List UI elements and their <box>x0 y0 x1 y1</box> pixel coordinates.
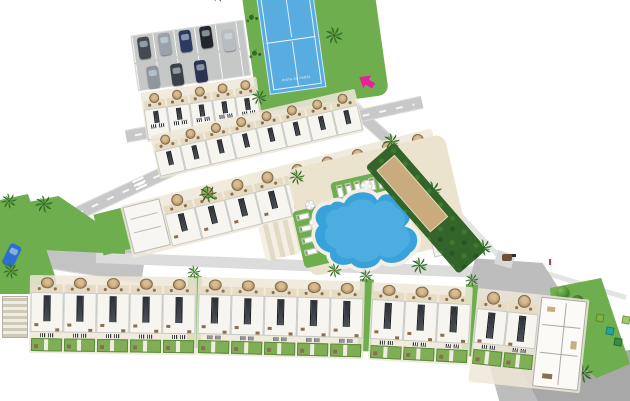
furniture <box>547 306 555 312</box>
roof-furniture <box>477 339 481 342</box>
roof <box>332 105 363 136</box>
roof-furniture <box>289 332 293 335</box>
stair-access <box>172 335 185 339</box>
roof <box>63 292 97 332</box>
stair-access <box>40 333 53 337</box>
roof-furniture <box>88 329 92 332</box>
solar-panel <box>486 312 496 339</box>
palm-tree <box>200 186 216 202</box>
solar-panel <box>216 139 224 154</box>
roof <box>473 308 507 346</box>
solar-panel <box>343 301 351 327</box>
solar-panel <box>244 98 251 111</box>
palm-tree <box>4 264 18 278</box>
stair-access <box>273 337 286 341</box>
roof-furniture <box>268 327 272 330</box>
palm-tree <box>290 170 304 184</box>
roof-furniture <box>508 342 512 345</box>
solar-panel <box>292 122 300 137</box>
front-garden <box>472 349 502 367</box>
palm-tree <box>251 90 267 106</box>
front-garden <box>330 343 361 357</box>
solar-panel <box>241 133 249 148</box>
townhouse-row-south-2 <box>196 277 365 359</box>
townhouse-unit <box>436 288 471 364</box>
front-garden <box>198 340 229 354</box>
solar-panel <box>449 306 457 332</box>
roof-furniture <box>55 328 59 331</box>
front-garden <box>264 342 295 356</box>
townhouse-unit <box>31 277 63 351</box>
townhouse-unit <box>64 277 96 351</box>
solar-panel <box>267 127 275 142</box>
stair-access <box>207 335 220 339</box>
palm-tree <box>36 196 52 212</box>
townhouse-row-south-3 <box>368 282 473 365</box>
stair-access <box>339 339 352 343</box>
solar-panel <box>76 296 83 322</box>
front-garden <box>97 339 128 352</box>
solar-panel <box>211 297 219 323</box>
stair-access <box>139 334 152 338</box>
roof-furniture <box>67 323 71 326</box>
townhouse-row-south-1 <box>29 275 197 355</box>
roof-furniture <box>204 227 209 231</box>
roof-furniture <box>374 330 378 333</box>
roof-furniture <box>395 336 399 339</box>
townhouse-unit <box>403 286 438 362</box>
solar-panel <box>109 296 116 322</box>
roof <box>30 292 64 332</box>
solar-panel <box>175 297 182 323</box>
solar-panel <box>310 300 318 326</box>
stair-access <box>73 334 86 338</box>
solar-panel <box>517 315 527 342</box>
stair-access <box>380 340 393 345</box>
townhouse-unit <box>297 282 330 357</box>
palm-tree <box>360 270 372 282</box>
roof-furniture <box>154 330 158 333</box>
solar-panel <box>142 297 149 323</box>
solar-panel <box>191 145 199 160</box>
roof-furniture <box>223 331 227 334</box>
stair-access <box>240 336 253 340</box>
site-plan: PISTA DE PADEL <box>0 0 630 401</box>
solar-panel <box>207 205 217 224</box>
front-garden <box>31 338 62 351</box>
roof <box>129 293 163 333</box>
planter <box>621 315 630 324</box>
palm-tree <box>466 274 478 286</box>
marker <box>549 259 551 265</box>
front-garden <box>403 347 434 362</box>
roof <box>296 297 330 338</box>
stair-access <box>306 338 319 342</box>
front-garden <box>503 352 533 370</box>
roof-furniture <box>235 326 239 329</box>
stair-access <box>151 123 164 129</box>
roof-furniture <box>440 334 444 337</box>
front-garden <box>436 348 467 363</box>
stair-access <box>413 342 426 347</box>
roof <box>403 301 438 343</box>
roof-furniture <box>321 333 325 336</box>
roof-furniture <box>187 330 191 333</box>
planter <box>605 326 614 335</box>
townhouse-unit <box>231 280 264 355</box>
roof <box>198 294 232 335</box>
show-home-floorplan <box>532 297 587 391</box>
solar-panel <box>343 110 351 125</box>
solar-panel <box>199 104 206 117</box>
roof-furniture <box>256 331 260 334</box>
townhouse-unit <box>370 284 405 360</box>
planter <box>595 313 604 322</box>
palm-tree <box>325 26 343 44</box>
palm-tree <box>188 266 200 278</box>
court-line <box>284 0 291 37</box>
unit-group <box>472 290 539 370</box>
roof <box>504 311 538 349</box>
roof-furniture <box>461 340 465 343</box>
roof <box>96 293 130 333</box>
pergola <box>2 296 28 338</box>
solar-panel <box>244 298 252 324</box>
roof <box>263 296 297 337</box>
furniture <box>542 373 552 379</box>
roof-furniture <box>166 325 170 328</box>
roof-furniture <box>234 220 239 224</box>
roof-furniture <box>34 323 38 326</box>
front-garden <box>130 339 161 352</box>
palm-tree <box>476 240 491 255</box>
front-garden <box>64 338 95 351</box>
townhouse-unit <box>97 278 129 352</box>
townhouse-row-south-4 <box>468 288 589 393</box>
front-garden <box>231 341 262 355</box>
roof-furniture <box>354 334 358 337</box>
roof-furniture <box>133 324 137 327</box>
roof-furniture <box>202 325 206 328</box>
solar-panel <box>277 299 285 325</box>
stair-access <box>106 334 119 338</box>
roof-furniture <box>174 235 179 239</box>
palm-tree <box>384 134 399 149</box>
solar-panel <box>43 295 50 321</box>
townhouse-unit <box>264 281 297 356</box>
townhouse-unit <box>130 278 162 352</box>
front-garden <box>370 345 401 360</box>
roof-furniture <box>301 328 305 331</box>
roof <box>162 294 196 334</box>
solar-panel <box>221 101 228 114</box>
solar-panel <box>384 303 392 329</box>
planter <box>613 337 622 346</box>
solar-panel <box>153 111 160 124</box>
parasol <box>305 200 315 210</box>
solar-panel <box>237 198 247 217</box>
solar-panel <box>417 304 425 330</box>
solar-panel <box>177 213 187 232</box>
roof-furniture <box>407 332 411 335</box>
roof <box>230 295 264 336</box>
stair-access <box>446 344 459 349</box>
solar-panel <box>267 190 277 209</box>
palm-tree <box>328 264 341 277</box>
townhouse-unit <box>198 279 231 354</box>
roof-furniture <box>100 324 104 327</box>
palm-tree <box>412 258 427 273</box>
palm-tree <box>210 0 226 2</box>
furniture <box>570 341 577 350</box>
roof-furniture <box>334 329 338 332</box>
palm-tree <box>2 194 16 208</box>
bench <box>502 254 512 261</box>
stair-access <box>174 120 187 126</box>
roof-furniture <box>121 329 125 332</box>
roof <box>436 302 471 344</box>
roof-furniture <box>428 338 432 341</box>
townhouse-unit <box>330 283 363 358</box>
roof <box>329 297 363 338</box>
solar-panel <box>176 107 183 120</box>
roof-furniture <box>264 212 269 216</box>
front-garden <box>297 343 328 357</box>
townhouse-unit <box>163 279 195 353</box>
roof <box>370 299 405 341</box>
solar-panel <box>317 116 325 131</box>
solar-panel <box>165 151 173 166</box>
front-garden <box>163 340 194 353</box>
